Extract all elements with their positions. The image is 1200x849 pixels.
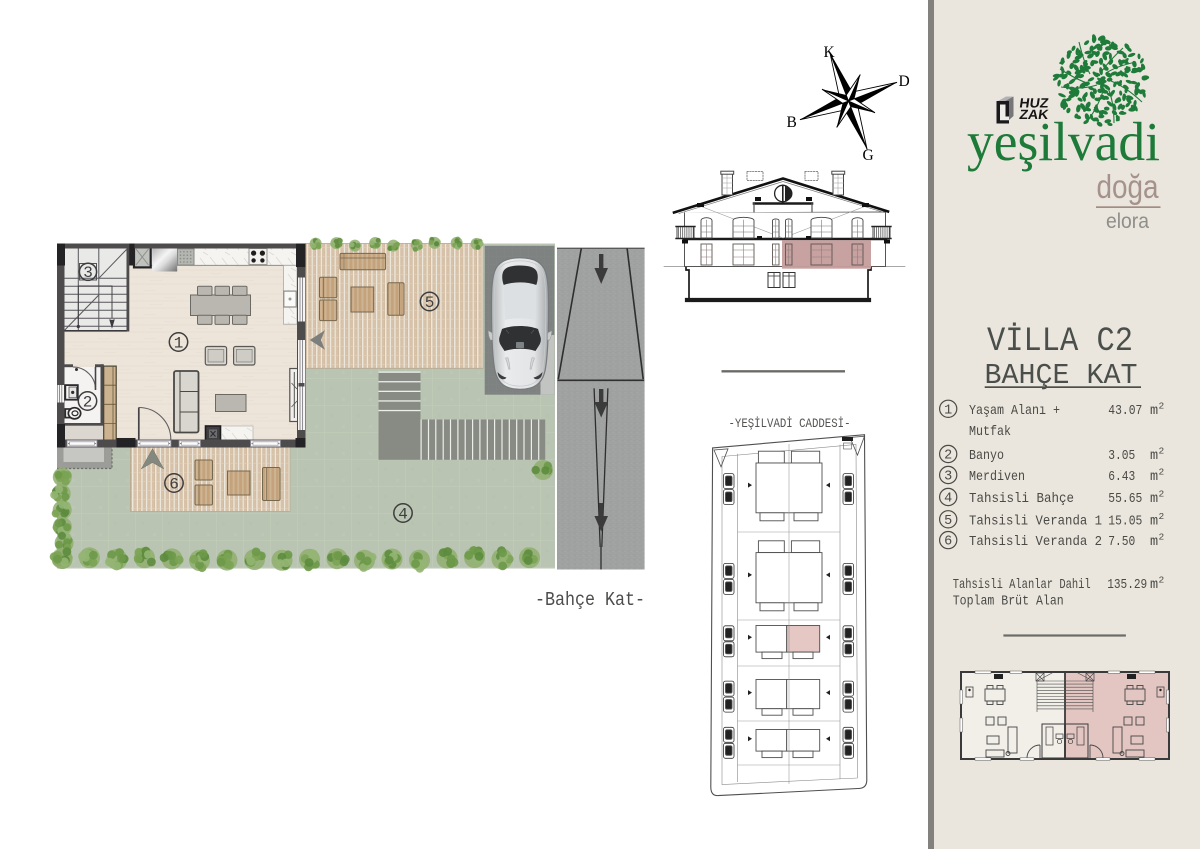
svg-text:Tahsisli Veranda 1: Tahsisli Veranda 1: [969, 513, 1102, 529]
svg-text:m: m: [1150, 492, 1158, 507]
svg-text:5: 5: [944, 514, 952, 529]
svg-text:6.43: 6.43: [1108, 470, 1135, 485]
svg-text:elora: elora: [1106, 210, 1149, 233]
svg-text:Tahsisli Bahçe: Tahsisli Bahçe: [969, 491, 1074, 507]
svg-text:2: 2: [1159, 575, 1165, 586]
svg-text:doğa: doğa: [1097, 168, 1160, 205]
svg-text:m: m: [1150, 470, 1158, 485]
svg-text:2: 2: [1159, 489, 1165, 500]
svg-text:2: 2: [1159, 446, 1165, 457]
svg-text:m: m: [1150, 449, 1158, 464]
svg-text:2: 2: [1159, 400, 1165, 411]
svg-text:4: 4: [944, 492, 952, 507]
svg-text:3.05: 3.05: [1108, 449, 1135, 464]
svg-text:3: 3: [944, 470, 952, 485]
svg-text:Banyo: Banyo: [969, 448, 1004, 464]
svg-text:yeşilvadi: yeşilvadi: [967, 111, 1160, 172]
svg-text:Tahsisli Alanlar Dahil: Tahsisli Alanlar Dahil: [953, 577, 1091, 593]
svg-text:15.05: 15.05: [1108, 514, 1142, 529]
svg-text:m: m: [1150, 578, 1158, 593]
svg-text:m: m: [1150, 404, 1158, 419]
svg-text:Toplam Brüt Alan: Toplam Brüt Alan: [953, 594, 1064, 610]
svg-text:43.07: 43.07: [1108, 404, 1142, 419]
svg-text:7.50: 7.50: [1108, 535, 1135, 550]
svg-text:2: 2: [1159, 532, 1165, 543]
svg-text:Mutfak: Mutfak: [969, 424, 1011, 440]
svg-text:Yaşam Alanı +: Yaşam Alanı +: [969, 403, 1060, 419]
svg-text:1: 1: [944, 403, 952, 418]
svg-text:2: 2: [1159, 467, 1165, 478]
svg-text:55.65: 55.65: [1108, 492, 1142, 507]
svg-text:2: 2: [944, 449, 952, 464]
svg-text:2: 2: [1159, 511, 1165, 522]
svg-text:VİLLA C2: VİLLA C2: [987, 323, 1133, 361]
svg-text:Tahsisli Veranda 2: Tahsisli Veranda 2: [969, 534, 1102, 550]
svg-text:Merdiven: Merdiven: [969, 469, 1025, 485]
svg-text:m: m: [1150, 535, 1158, 550]
svg-text:6: 6: [944, 535, 952, 550]
svg-text:m: m: [1150, 514, 1158, 529]
svg-text:135.29: 135.29: [1107, 578, 1147, 593]
